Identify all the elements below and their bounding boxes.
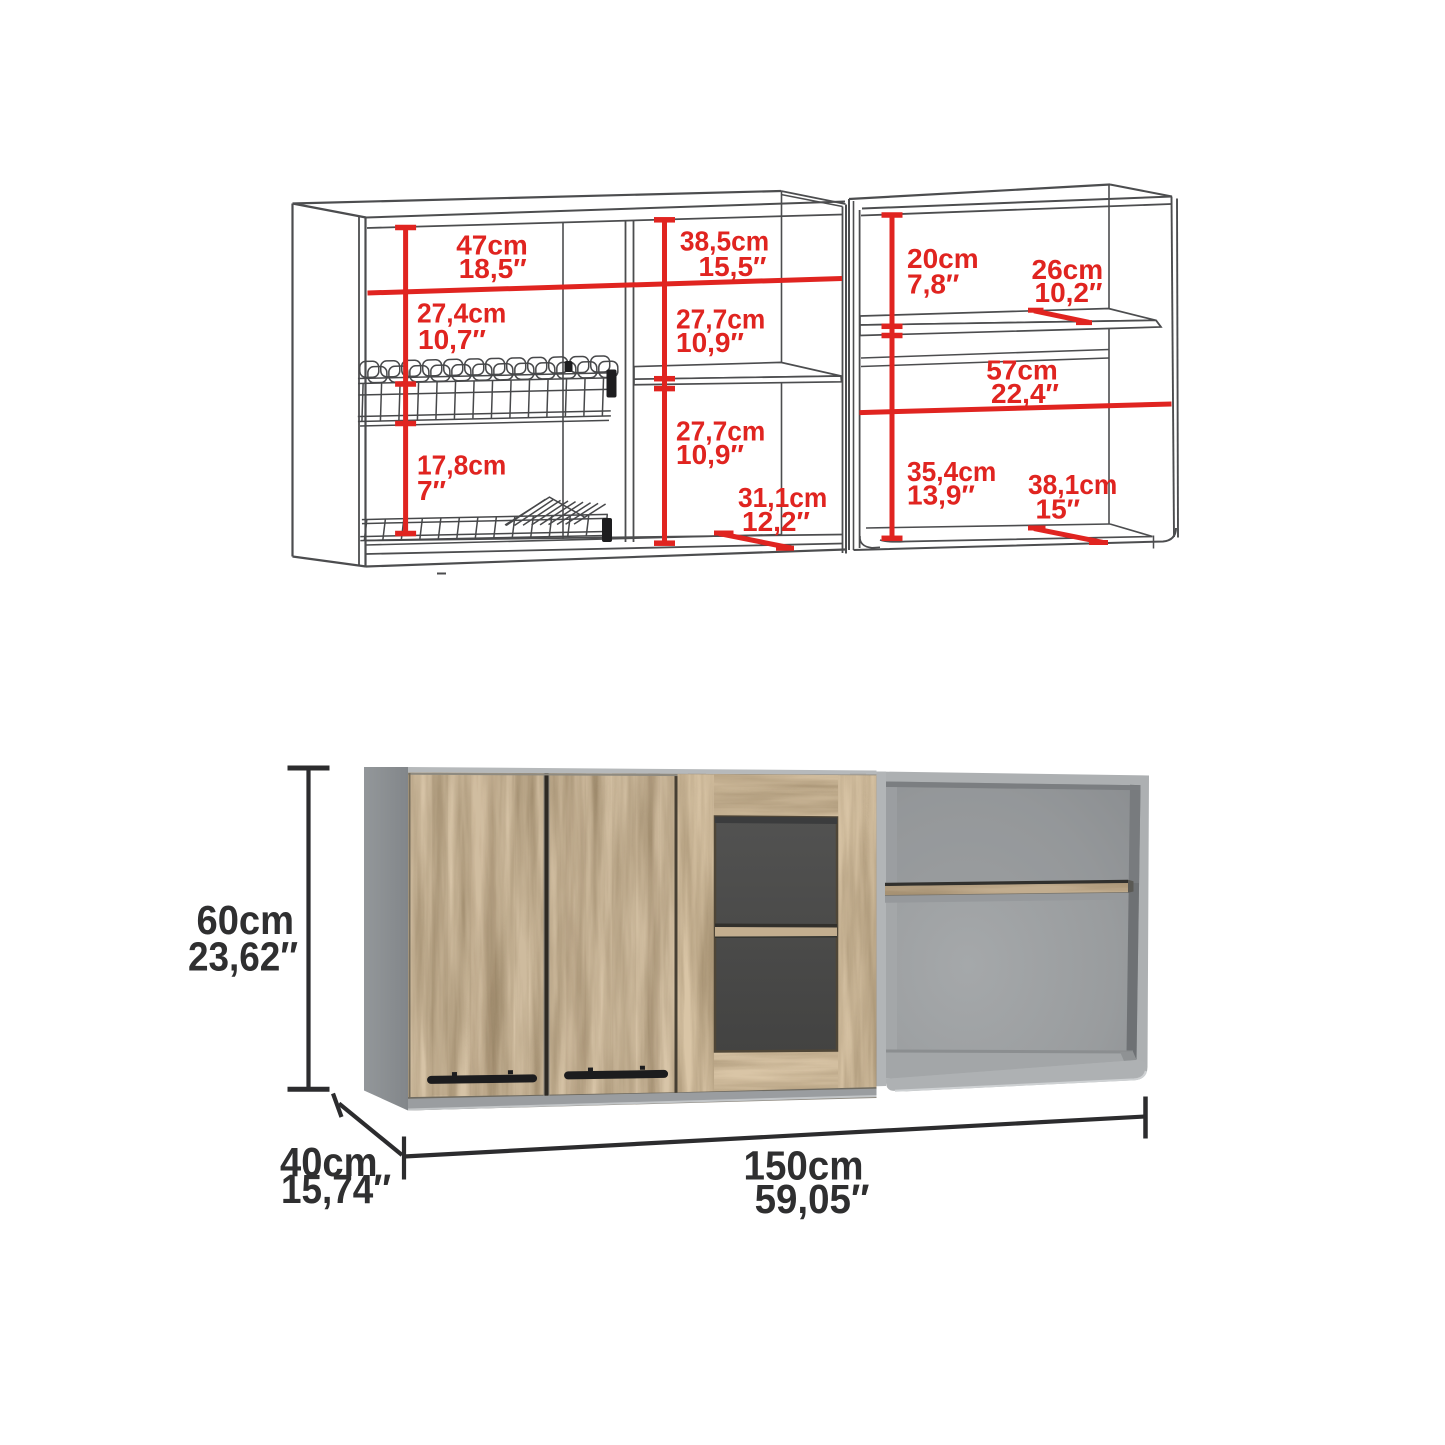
svg-text:15″: 15″: [1036, 494, 1081, 525]
svg-text:13,9″: 13,9″: [907, 480, 975, 511]
svg-text:15,5″: 15,5″: [699, 251, 767, 282]
svg-text:12,2″: 12,2″: [742, 506, 810, 537]
svg-text:18,5″: 18,5″: [459, 253, 527, 284]
svg-text:22,4″: 22,4″: [991, 378, 1059, 409]
svg-text:10,9″: 10,9″: [676, 439, 744, 470]
svg-text:23,62″: 23,62″: [188, 935, 298, 980]
svg-text:10,9″: 10,9″: [676, 327, 744, 358]
svg-text:59,05″: 59,05″: [755, 1177, 870, 1222]
svg-text:10,7″: 10,7″: [418, 324, 486, 355]
svg-text:7,8″: 7,8″: [907, 269, 959, 300]
svg-text:15,74″: 15,74″: [281, 1167, 391, 1212]
svg-text:10,2″: 10,2″: [1035, 277, 1103, 308]
svg-text:7″: 7″: [417, 475, 446, 506]
